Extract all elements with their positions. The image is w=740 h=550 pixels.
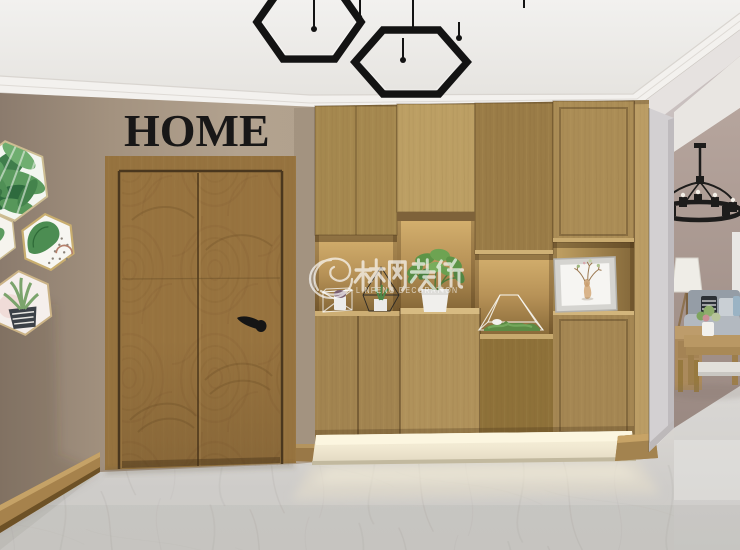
svg-text:HOME: HOME — [124, 105, 270, 156]
svg-text:LINFENG DECORATION: LINFENG DECORATION — [356, 286, 458, 296]
